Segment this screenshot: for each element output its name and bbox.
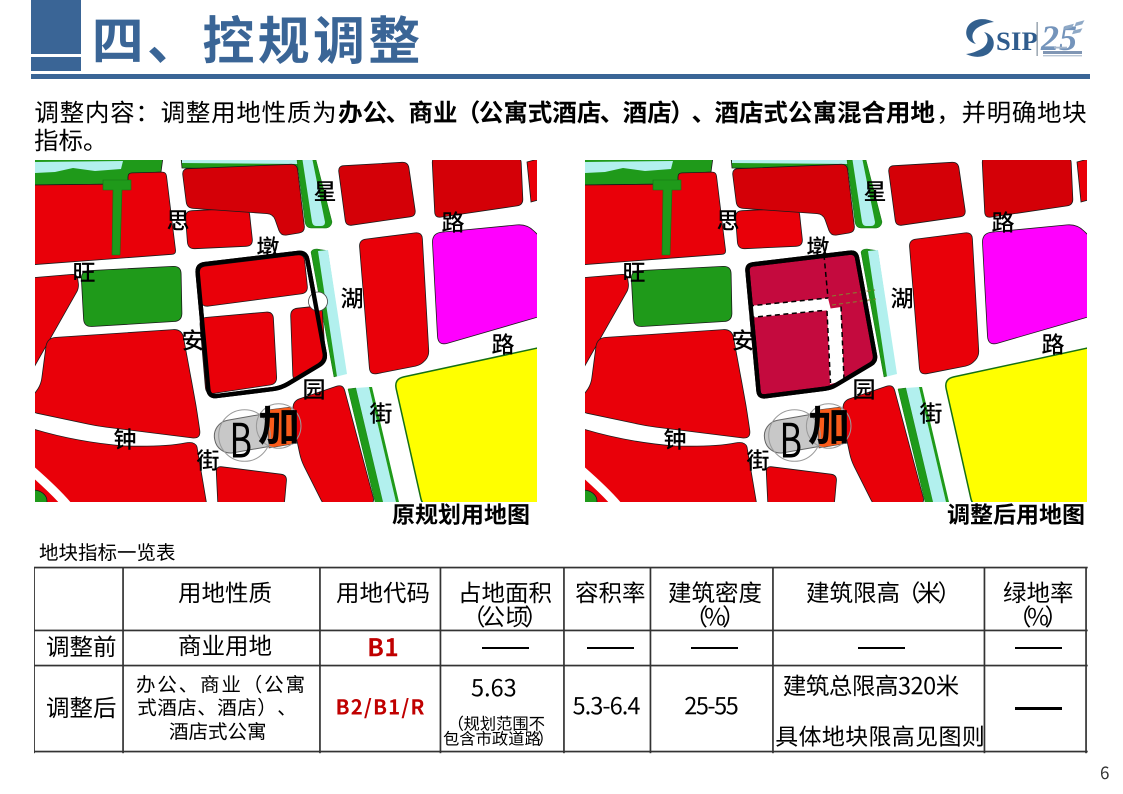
svg-text:SIP: SIP [996, 26, 1038, 56]
